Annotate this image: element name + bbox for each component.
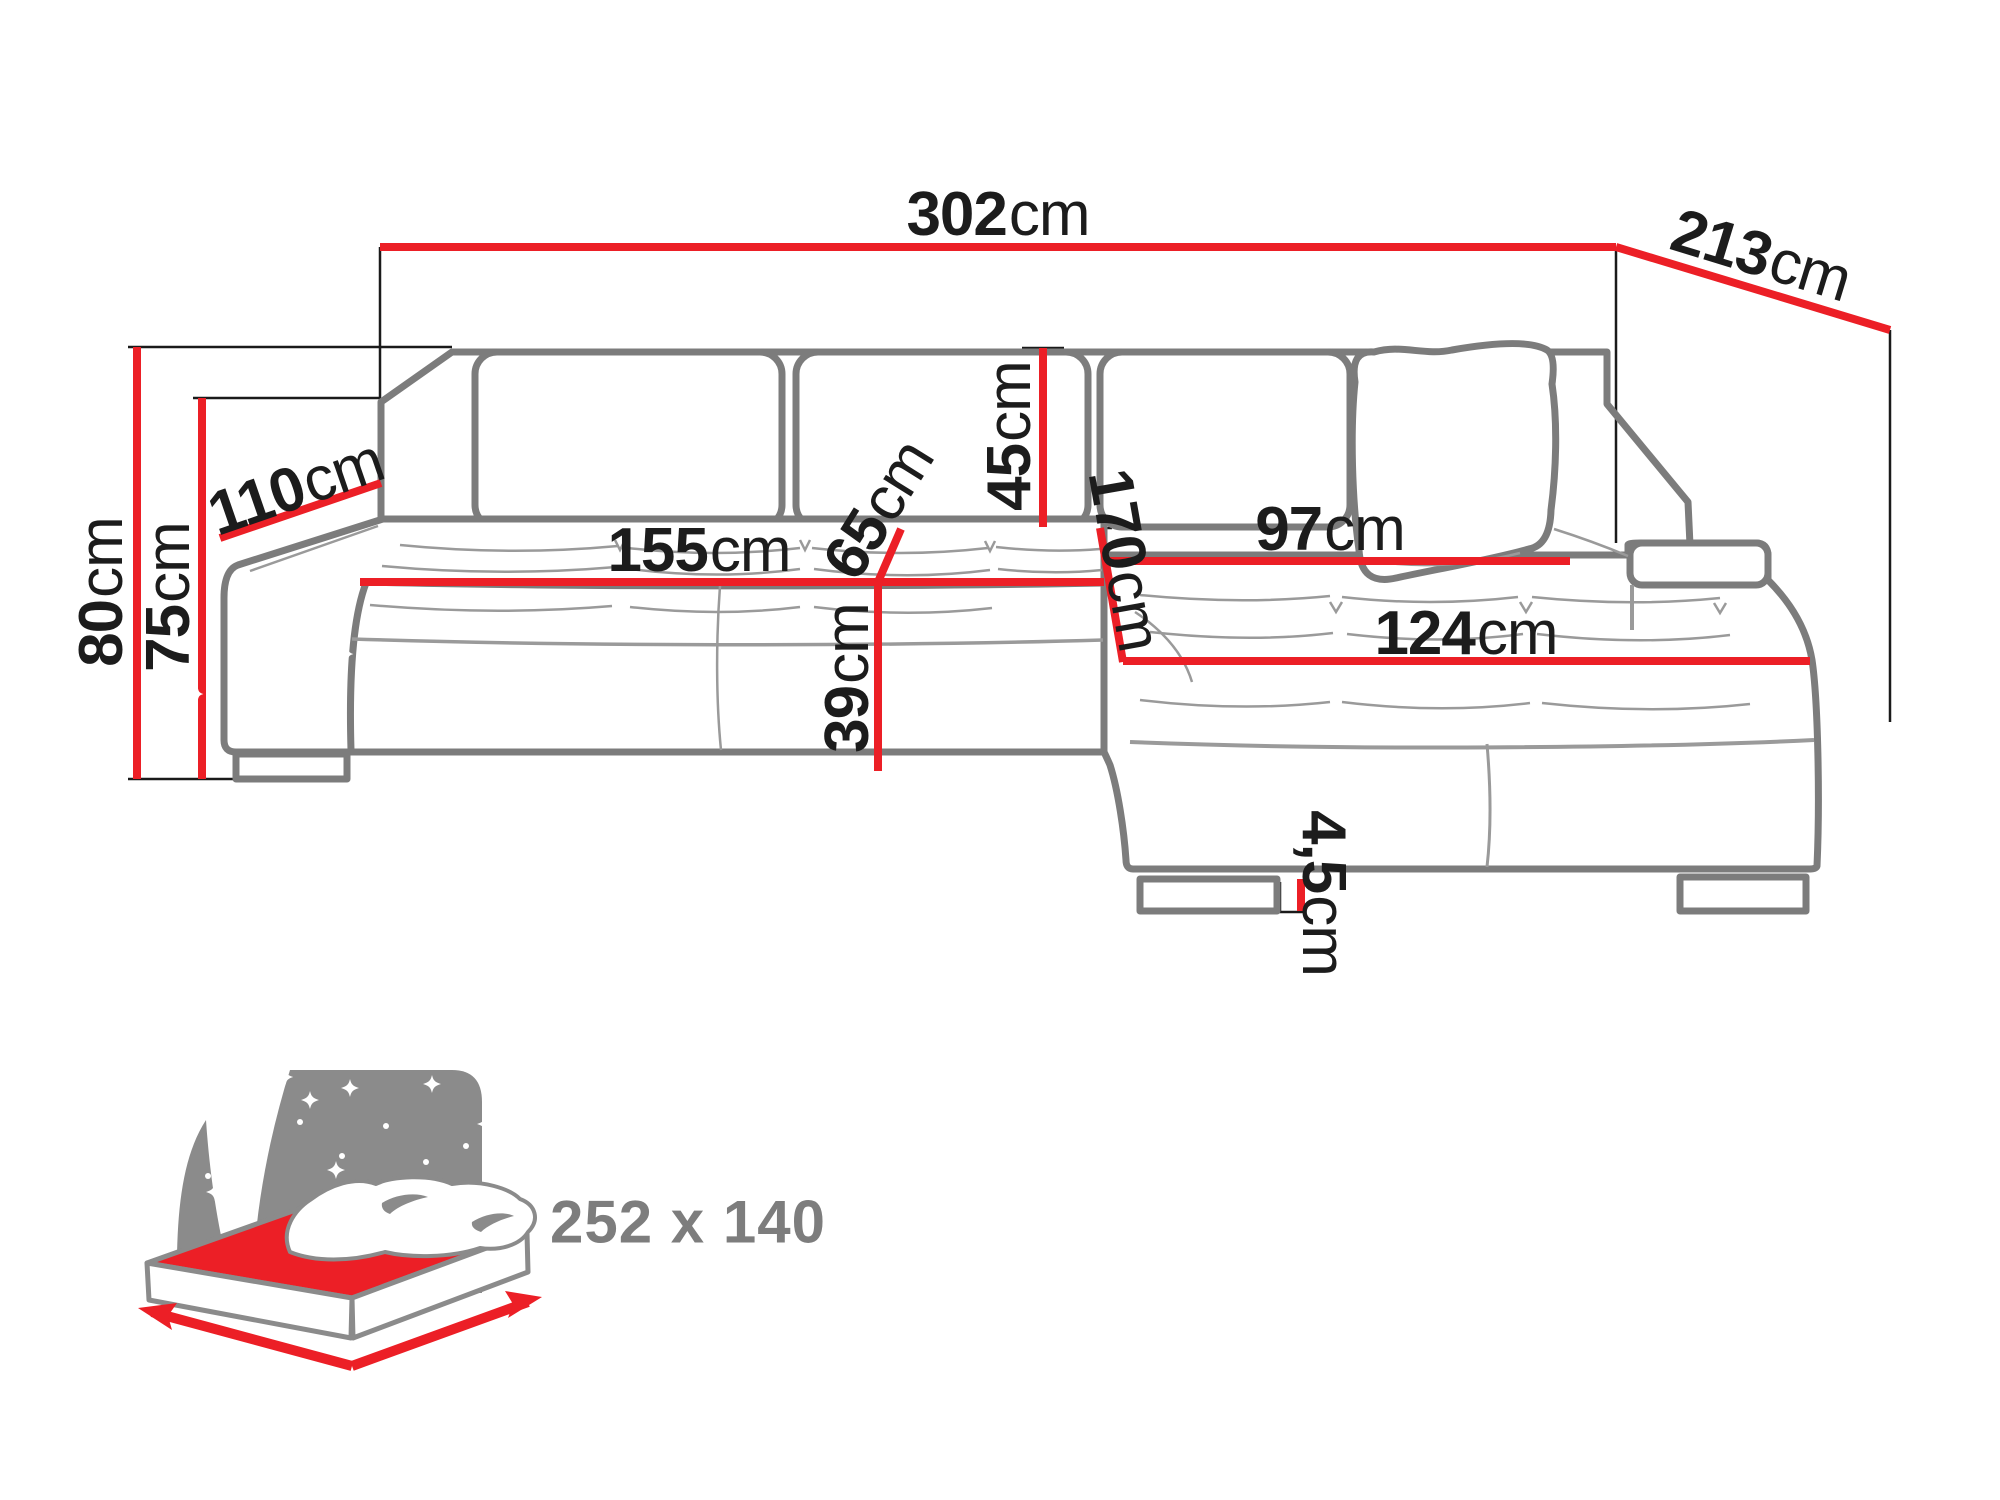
right-armrest-pad bbox=[1630, 543, 1768, 585]
dimension-label-total-height: 80cm bbox=[71, 517, 133, 667]
sofa-leg bbox=[1140, 879, 1277, 911]
dimension-label-seat-width: 155cm bbox=[607, 520, 790, 582]
sofa-leg bbox=[236, 754, 347, 779]
sleeping-area-size-label: 252 x 140 bbox=[550, 1188, 826, 1257]
dimension-label-chaise-width-back: 97cm bbox=[1255, 499, 1405, 561]
dimension-label-total-width: 302cm bbox=[906, 184, 1089, 246]
backrest-cushion bbox=[475, 352, 782, 527]
dimension-label-chaise-width-front: 124cm bbox=[1374, 603, 1557, 665]
sofa-dimension-diagram: 302cm 213cm 80cm 75cm 110cm 155cm 65cm 4… bbox=[0, 0, 2000, 1500]
dimension-label-backrest-height: 75cm bbox=[138, 522, 200, 672]
dimension-label-seat-height: 39cm bbox=[817, 603, 879, 753]
sofa-leg bbox=[1680, 877, 1806, 911]
dimension-label-backrest-cushion-height: 45cm bbox=[979, 361, 1041, 511]
dimension-label-leg-height: 4,5cm bbox=[1292, 810, 1354, 976]
